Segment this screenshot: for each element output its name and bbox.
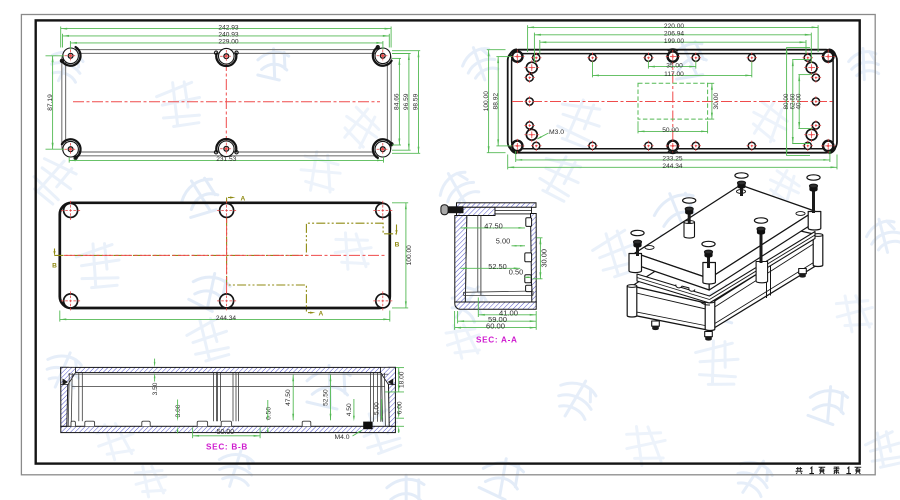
svg-text:40.00: 40.00 [796, 93, 803, 109]
svg-text:M4.0: M4.0 [334, 434, 349, 441]
svg-text:84.66: 84.66 [394, 93, 401, 110]
svg-text:5.00: 5.00 [496, 236, 510, 245]
svg-text:229.00: 229.00 [218, 39, 239, 46]
svg-text:M3.0: M3.0 [549, 129, 564, 136]
svg-text:231.53: 231.53 [216, 156, 237, 163]
svg-text:242.93: 242.93 [218, 24, 239, 31]
svg-text:6.00: 6.00 [396, 401, 403, 414]
svg-text:50.00: 50.00 [217, 429, 235, 436]
svg-text:SEC: A-A: SEC: A-A [476, 335, 518, 344]
svg-text:30.00: 30.00 [540, 249, 549, 268]
svg-text:50.00: 50.00 [662, 127, 679, 134]
svg-text:3.50: 3.50 [152, 382, 159, 395]
svg-text:18.00: 18.00 [398, 371, 405, 388]
svg-text:0.50: 0.50 [509, 268, 523, 277]
svg-text:A: A [319, 310, 324, 317]
svg-text:199.00: 199.00 [664, 38, 685, 45]
svg-text:244.34: 244.34 [216, 315, 237, 322]
svg-text:A: A [241, 195, 246, 202]
svg-text:220.00: 220.00 [664, 23, 685, 30]
svg-text:5.00: 5.00 [374, 402, 381, 415]
svg-text:4.50: 4.50 [346, 403, 353, 416]
svg-text:117.00: 117.00 [664, 71, 684, 78]
svg-text:35.00: 35.00 [666, 62, 683, 69]
svg-text:240.93: 240.93 [218, 32, 239, 39]
svg-text:B: B [52, 263, 57, 270]
svg-text:B: B [395, 242, 400, 249]
svg-text:244.34: 244.34 [662, 163, 683, 170]
svg-text:206.94: 206.94 [664, 31, 685, 38]
svg-text:88.92: 88.92 [492, 93, 499, 110]
svg-text:52.50: 52.50 [322, 389, 329, 406]
svg-text:30.00: 30.00 [713, 93, 720, 110]
svg-text:100.00: 100.00 [483, 91, 490, 112]
svg-text:60.00: 60.00 [486, 321, 505, 330]
svg-text:47.50: 47.50 [484, 222, 503, 231]
svg-text:0.50: 0.50 [266, 407, 273, 420]
svg-text:98.59: 98.59 [413, 93, 420, 110]
svg-text:3.00: 3.00 [175, 404, 182, 417]
svg-text:87.19: 87.19 [47, 94, 54, 111]
svg-text:100.00: 100.00 [406, 245, 413, 266]
svg-text:233.25: 233.25 [662, 156, 683, 163]
svg-text:96.59: 96.59 [403, 93, 410, 110]
svg-text:52.50: 52.50 [488, 262, 507, 271]
svg-text:47.50: 47.50 [285, 389, 292, 406]
svg-text:SEC: B-B: SEC: B-B [206, 443, 248, 452]
